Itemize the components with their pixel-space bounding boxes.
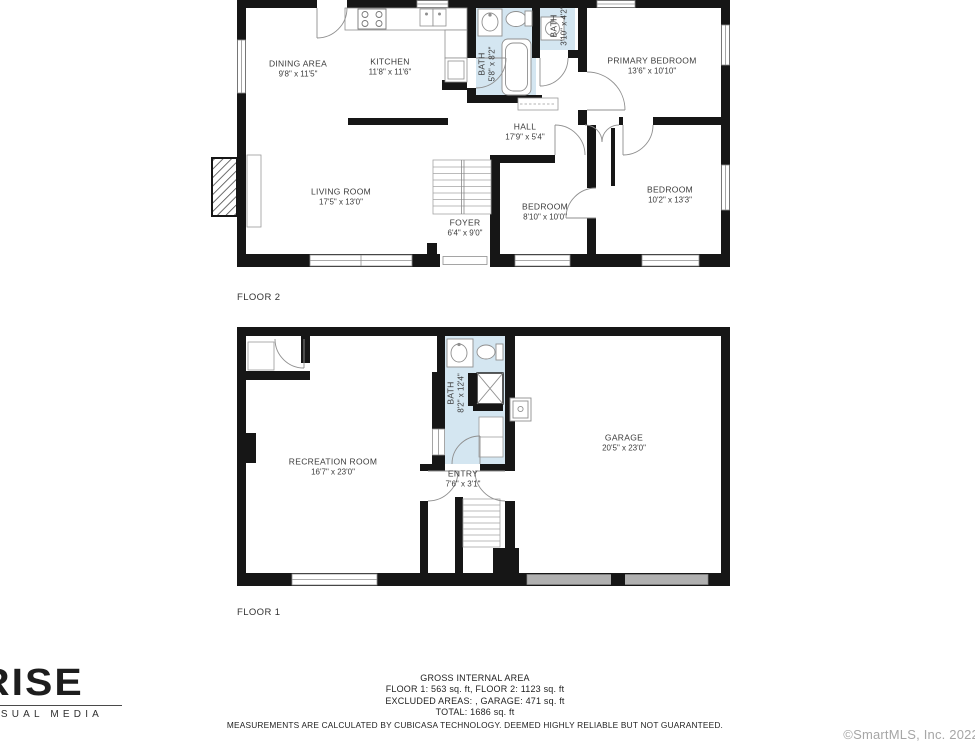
rise-logo: RISE <box>0 661 84 704</box>
total-area-line: TOTAL: 1686 sq. ft <box>0 707 950 718</box>
disclaimer-line: MEASUREMENTS ARE CALCULATED BY CUBICASA … <box>0 720 950 731</box>
floor1-plan: RECREATION ROOM 16'7" x 23'0" BATH 8'2" … <box>237 327 730 586</box>
room-label-hall: HALL 17'9" x 5'4" <box>505 121 544 142</box>
bath-cabinet <box>479 417 503 457</box>
floorplan-page: DINING AREA 9'8" x 11'5" KITCHEN 11'8" x… <box>0 0 975 743</box>
room-label-kitchen: KITCHEN 11'8" x 11'6" <box>369 56 412 77</box>
logo-divider <box>0 705 122 706</box>
kitchen-sink-icon <box>420 9 446 26</box>
stairs-icon <box>463 499 500 547</box>
room-label-bath: BATH 5'8" x 8'2" <box>476 47 497 82</box>
toilet-icon <box>506 12 526 27</box>
stove-icon <box>358 9 386 29</box>
room-label-bedroom1: BEDROOM 8'10" x 10'0" <box>522 201 568 222</box>
floor2-plan: DINING AREA 9'8" x 11'5" KITCHEN 11'8" x… <box>237 0 730 267</box>
hall-closet <box>518 98 558 110</box>
interior-window <box>433 429 445 455</box>
fireplace <box>247 155 261 227</box>
room-label-entry: ENTRY 7'6" x 3'1" <box>446 468 481 489</box>
mls-copyright: ©SmartMLS, Inc. 2022 <box>843 727 975 742</box>
utility-sink-icon <box>510 398 531 421</box>
windows <box>292 574 377 585</box>
chimney <box>212 158 237 216</box>
stairs-icon <box>433 160 491 214</box>
gross-internal-area-title: GROSS INTERNAL AREA <box>0 673 950 684</box>
garage-door <box>527 573 708 586</box>
closet <box>248 342 274 370</box>
room-label-dining-area: DINING AREA 9'8" x 11'5" <box>269 58 327 79</box>
floor2-label: FLOOR 2 <box>237 292 280 303</box>
floor-areas-line: FLOOR 1: 563 sq. ft, FLOOR 2: 1123 sq. f… <box>0 684 950 695</box>
floor2-floorplan-graphic <box>237 0 730 267</box>
patio-door-opening <box>317 0 347 8</box>
room-label-garage: GARAGE 20'5" x 23'0" <box>602 432 646 453</box>
room-label-living-room: LIVING ROOM 17'5" x 13'0" <box>311 186 371 207</box>
room-label-primary-bedroom: PRIMARY BEDROOM 13'6" x 10'10" <box>607 55 696 76</box>
room-label-recreation-room: RECREATION ROOM 16'7" x 23'0" <box>289 456 377 477</box>
room-label-bedroom2: BEDROOM 10'2" x 13'3" <box>647 184 693 205</box>
room-label-foyer: FOYER 6'4" x 9'0" <box>448 217 483 238</box>
room-label-bath: BATH 8'2" x 12'4" <box>445 373 466 412</box>
floor1-label: FLOOR 1 <box>237 607 280 618</box>
room-label-bath-small: BATH 3'10" x 4'2" <box>548 6 569 45</box>
area-summary: GROSS INTERNAL AREA FLOOR 1: 563 sq. ft,… <box>0 673 950 732</box>
excluded-areas-line: EXCLUDED AREAS: , GARAGE: 471 sq. ft <box>0 696 950 707</box>
shower-icon <box>468 373 503 411</box>
logo-subtitle: VISUAL MEDIA <box>0 709 103 720</box>
front-door-opening <box>440 254 490 267</box>
toilet-icon <box>477 345 495 359</box>
